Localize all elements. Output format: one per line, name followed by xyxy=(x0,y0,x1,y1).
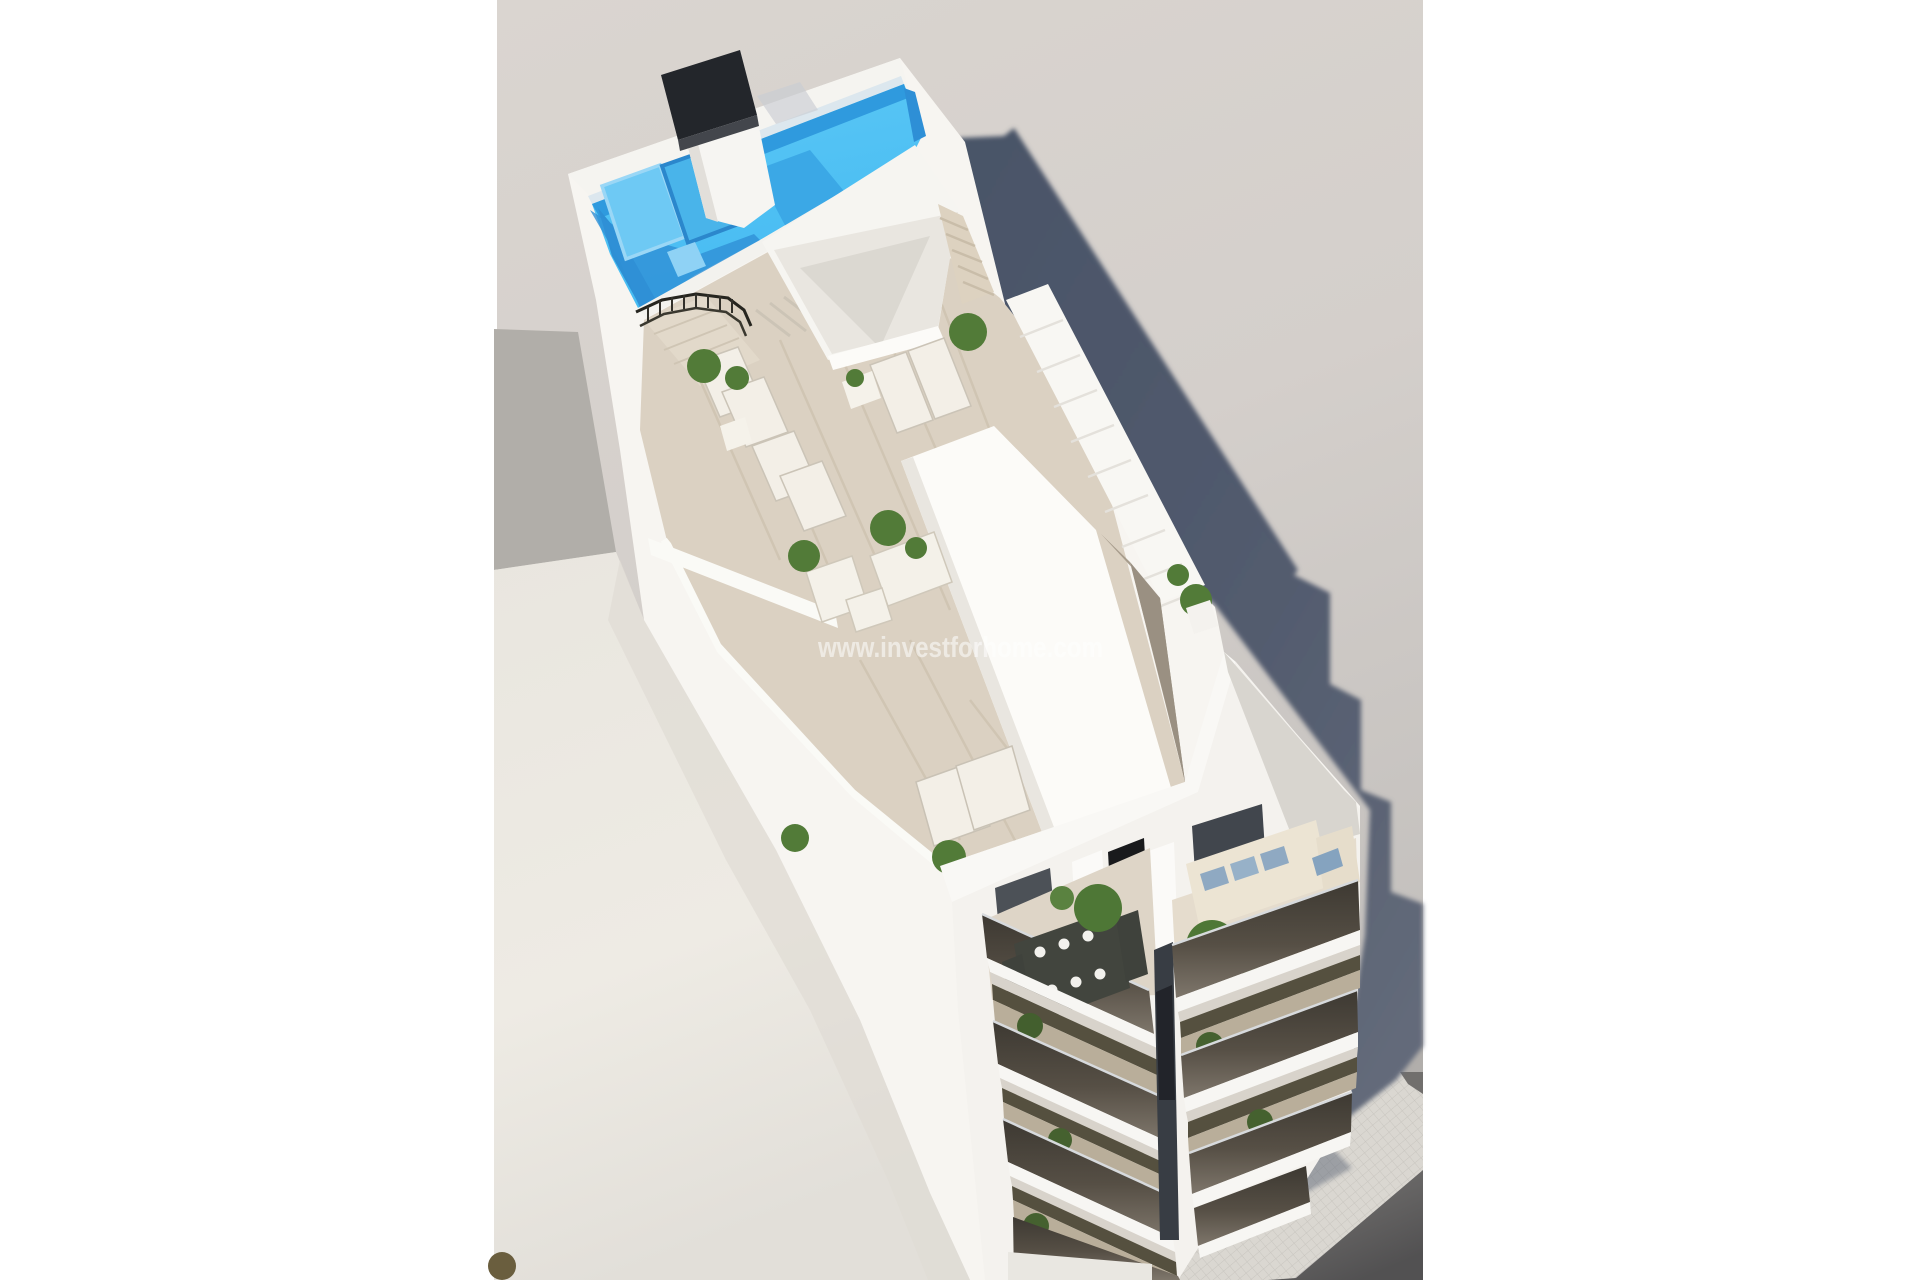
svg-text:www.investforhome.com: www.investforhome.com xyxy=(817,632,1103,664)
